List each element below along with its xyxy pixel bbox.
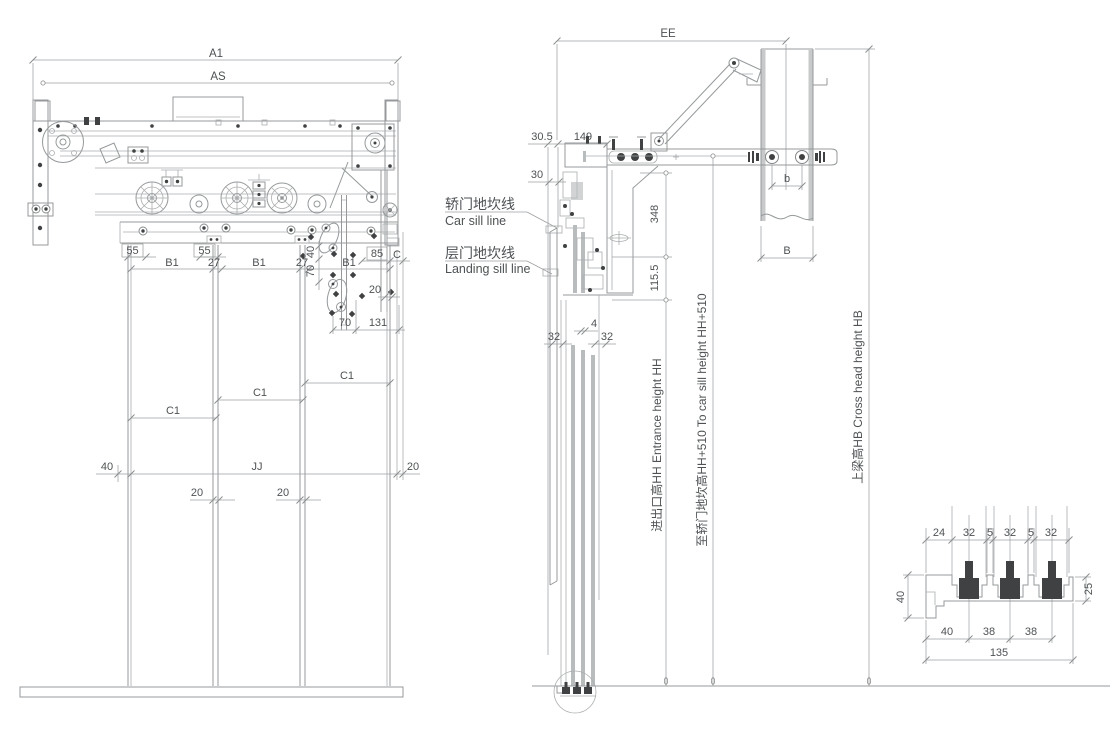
- dim-b-small-label: b: [784, 173, 790, 185]
- landing-sill-callout: 层门地坎线 Landing sill line: [445, 245, 552, 276]
- dim-32-top-label-2: 32: [1004, 527, 1016, 539]
- dim-25-label: 25: [1083, 583, 1095, 595]
- dim-27-label-1: 27: [208, 257, 220, 269]
- front-view-dimensions: A1 AS 55 55 B1 27 B1 27 B1 40 70 85 C: [30, 48, 421, 504]
- dim-40-label: 40: [101, 461, 113, 473]
- dim-b1-label-1: B1: [165, 257, 178, 269]
- dim-c1-label-3: C1: [166, 405, 180, 417]
- car-sill-line-cn: 轿门地坎线: [445, 196, 515, 212]
- door-gibs-section: [560, 682, 596, 696]
- dim-115-5-label: 115.5: [649, 265, 661, 292]
- sill-detail-dimensions: 24 32 5 32 5 32 40 25 40 38 38 135: [895, 527, 1095, 664]
- cross-head-height-label: 上梁高HB Cross head height HB: [850, 310, 865, 483]
- landing-sill-line-cn: 层门地坎线: [445, 245, 515, 261]
- operator-mechanism-cluster: [543, 172, 605, 293]
- front-view-geometry: [20, 97, 403, 697]
- dim-55-label-1: 55: [126, 245, 138, 257]
- dim-20-label-3: 20: [191, 487, 203, 499]
- dim-40-rot-label: 40: [305, 246, 317, 258]
- dim-348-label: 348: [649, 205, 661, 223]
- dim-38-label-2: 38: [1025, 626, 1037, 638]
- dim-c1-label-2: C1: [253, 387, 267, 399]
- dim-55-label-2: 55: [198, 245, 210, 257]
- dim-32-top-label-3: 32: [1045, 527, 1057, 539]
- dim-32-label-2: 32: [601, 331, 613, 343]
- dim-c1-label-1: C1: [340, 370, 354, 382]
- dim-a1-label: A1: [209, 48, 223, 60]
- hanger-arm: [583, 149, 837, 165]
- fascia-strip: [550, 228, 557, 585]
- diagonal-strut: [651, 58, 761, 151]
- dim-jj-label: JJ: [252, 461, 263, 473]
- hanger-rollers: [136, 182, 326, 214]
- dim-c-label: C: [393, 249, 401, 261]
- car-sill-callout: 轿门地坎线 Car sill line: [445, 196, 557, 228]
- elevator-door-technical-drawing: A1 AS 55 55 B1 27 B1 27 B1 40 70 85 C: [0, 0, 1110, 730]
- dim-5-label-2: 5: [1028, 527, 1034, 539]
- entrance-height-label: 进出口高HH Entrance height HH: [649, 358, 664, 531]
- dim-32-label-1: 32: [548, 331, 560, 343]
- dim-as-label: AS: [210, 71, 226, 83]
- dim-20-label-2: 20: [407, 461, 419, 473]
- sill-detail-view: 24 32 5 32 5 32 40 25 40 38 38 135: [895, 506, 1095, 664]
- door-gibs-detail: [959, 561, 1062, 599]
- landing-sill-front: [20, 687, 403, 697]
- dim-135-label: 135: [990, 647, 1008, 659]
- dim-149-label: 149: [574, 131, 592, 143]
- break-line: [761, 214, 813, 220]
- dim-4-label: 4: [591, 318, 597, 330]
- dim-24-label: 24: [933, 527, 945, 539]
- dim-ee-label: EE: [660, 28, 676, 40]
- dim-5-label-1: 5: [987, 527, 993, 539]
- dim-32-top-label-1: 32: [963, 527, 975, 539]
- dim-38-label-1: 38: [983, 626, 995, 638]
- dim-b-big-label: B: [783, 245, 790, 257]
- drawing-canvas: A1 AS 55 55 B1 27 B1 27 B1 40 70 85 C: [0, 0, 1110, 730]
- dim-30-label: 30: [531, 169, 543, 181]
- dim-70-label: 70: [339, 317, 351, 329]
- door-panels-section: [561, 295, 599, 686]
- side-view-geometry: [532, 49, 1110, 713]
- dim-b1-label-2: B1: [252, 257, 265, 269]
- landing-sill-line-en: Landing sill line: [445, 262, 531, 276]
- dim-85-label: 85: [371, 248, 383, 260]
- dim-40-left-label: 40: [895, 591, 907, 603]
- car-sill-line-en: Car sill line: [445, 214, 506, 228]
- dim-b1-label-3: B1: [342, 257, 355, 269]
- to-car-sill-height-label: 至轿门地坎高HH+510 To car sill height HH+510: [694, 293, 709, 547]
- dim-131-label: 131: [369, 317, 387, 329]
- dim-40-bottom-label: 40: [941, 626, 953, 638]
- front-view: A1 AS 55 55 B1 27 B1 27 B1 40 70 85 C: [20, 48, 420, 697]
- dim-20-label-1: 20: [369, 284, 381, 296]
- door-panels-front: [20, 232, 403, 697]
- dim-30-5-label: 30.5: [531, 131, 552, 143]
- dim-70-rot-label: 70: [305, 265, 317, 277]
- dim-20-label-4: 20: [277, 487, 289, 499]
